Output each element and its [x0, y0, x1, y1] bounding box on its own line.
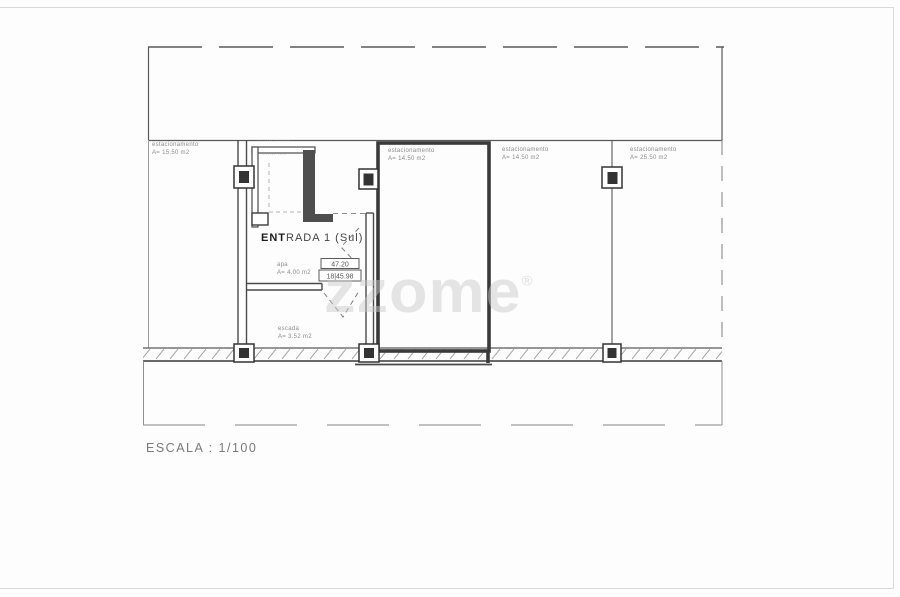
- storage-step: [252, 213, 268, 225]
- parking-name: estacionamento: [502, 146, 549, 154]
- level-value-upper: 47.20: [331, 262, 349, 269]
- parking-name: estacionamento: [152, 141, 199, 149]
- site-boundary: [148, 47, 724, 348]
- parking-name: estacionamento: [388, 147, 435, 155]
- entrance-title: ENTRADA 1 (Sul): [261, 231, 363, 246]
- parking-area: A= 15.50 m2: [152, 149, 199, 157]
- stairs-label: escada A= 3.52 m2: [278, 325, 312, 341]
- micro-annotation-room: ······ ····: [263, 152, 287, 159]
- parking-label-2: estacionamento A= 14.50 m2: [388, 147, 435, 163]
- stairs-name: escada: [278, 325, 312, 333]
- parking-area: A= 14.50 m2: [502, 154, 549, 162]
- post-core: [608, 172, 618, 184]
- garage-box: [378, 143, 489, 363]
- post-entry-bottom: [234, 344, 254, 362]
- post-core: [239, 171, 249, 183]
- storage-corner-wall: [303, 214, 333, 222]
- hall-area: A= 4.00 m2: [277, 269, 311, 277]
- garage-box-walls: [378, 143, 489, 351]
- entrance-title-bold: ENT: [261, 232, 286, 244]
- post-garage-top: [359, 169, 378, 189]
- level-boxes: 47.20 18|45.98: [319, 259, 361, 282]
- hall-door-swing: [324, 291, 359, 317]
- parking-area: A= 14.50 m2: [388, 155, 435, 163]
- post-separator-bottom: [603, 344, 621, 362]
- parking-name: estacionamento: [630, 146, 677, 154]
- post-entry-top: [234, 166, 254, 188]
- post-core: [608, 348, 617, 358]
- post-core: [364, 174, 374, 186]
- post-core: [239, 348, 249, 358]
- parking-label-1: estacionamento A= 15.50 m2: [152, 141, 199, 157]
- stairs-area: A= 3.52 m2: [278, 333, 312, 341]
- post-corridor-bottom: [359, 344, 379, 362]
- post-core: [364, 348, 374, 358]
- scale-caption: ESCALA : 1/100: [146, 440, 257, 457]
- parking-label-4: estacionamento A= 25.50 m2: [630, 146, 677, 162]
- floor-plan-drawing: 47.20 18|45.98: [0, 0, 900, 597]
- micro-annotation-top: ·· ···· ·······: [258, 138, 290, 145]
- sidewalk-strip: [143, 348, 722, 425]
- storage-right-wall: [303, 150, 315, 214]
- scanned-floor-plan-page: 47.20 18|45.98 estacionamento A= 15.50 m…: [0, 0, 900, 597]
- post-separator-top: [602, 167, 622, 188]
- entrance-title-rest: RADA 1 (Sul): [286, 232, 363, 244]
- level-value-lower: 18|45.98: [326, 274, 353, 281]
- storage-room: [252, 147, 333, 227]
- hall-name: apa: [277, 261, 311, 269]
- parking-label-3: estacionamento A= 14.50 m2: [502, 146, 549, 162]
- parking-area: A= 25.50 m2: [630, 154, 677, 162]
- hall-label: apa A= 4.00 m2: [277, 261, 311, 277]
